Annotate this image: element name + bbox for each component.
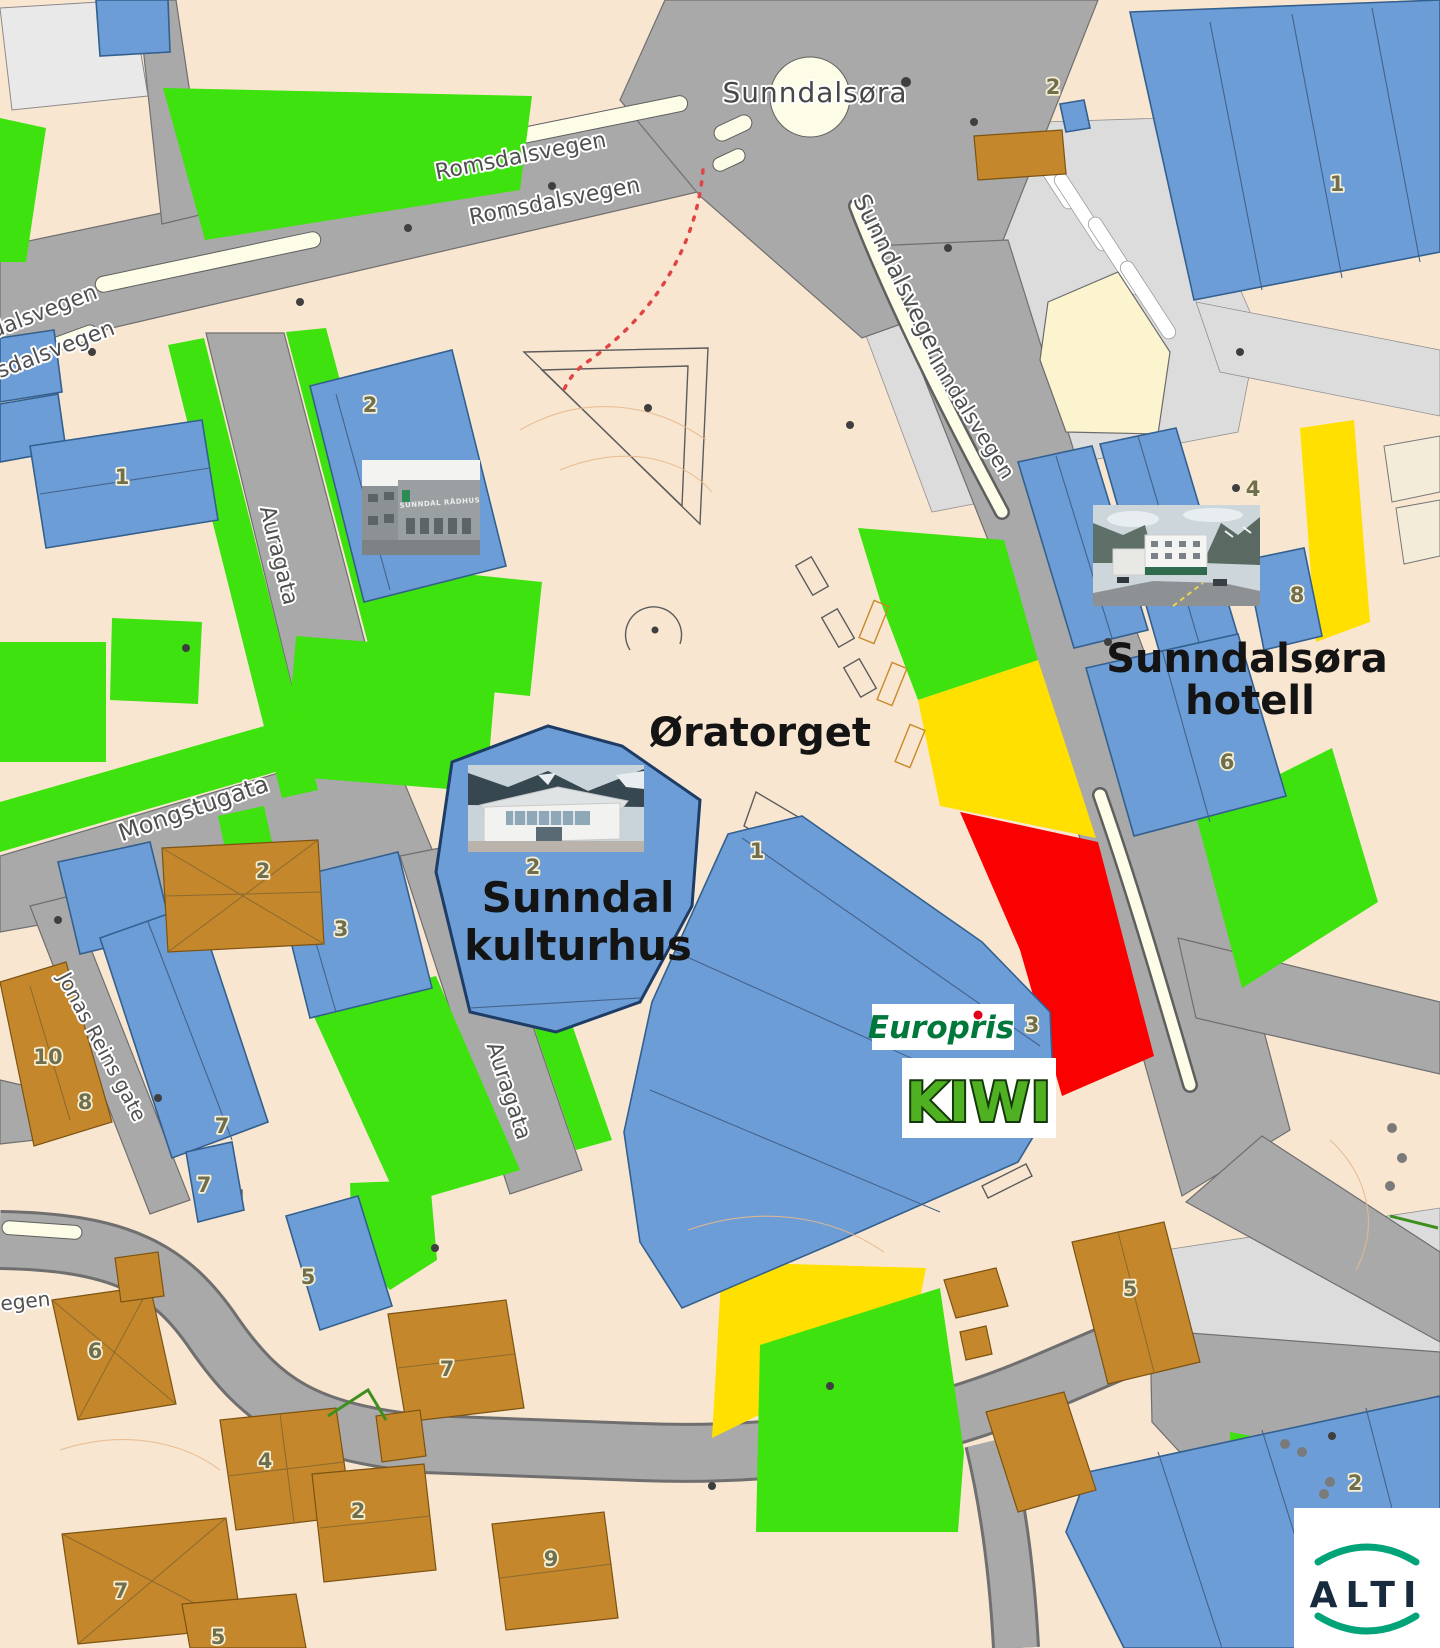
building-number: 5 — [301, 1265, 316, 1289]
building-number: 1 — [1330, 172, 1345, 196]
building-blue — [96, 0, 170, 56]
label-hotell-line1: Sunndalsøra — [1106, 636, 1388, 682]
building-number: 2 — [363, 393, 378, 417]
building-number: 7 — [215, 1114, 230, 1138]
building-tan-2 — [162, 840, 324, 952]
building-number: 6 — [88, 1339, 103, 1363]
europris-logo: Europris — [868, 1004, 1014, 1050]
building-number: 3 — [334, 917, 349, 941]
building-number: 2 — [351, 1499, 366, 1523]
photo-sunndal-kulturhus — [468, 765, 644, 852]
building-number: 2 — [1046, 75, 1061, 99]
sunndalsora-map: Sunndal Rådhus — [0, 0, 1440, 1648]
europris-logo-dot — [974, 1011, 983, 1020]
label-hotell-line2: hotell — [1185, 678, 1315, 724]
label-oratorget: Øratorget — [649, 710, 871, 756]
photo-sunndal-radhus: SUNNDAL RÅDHUS — [362, 460, 480, 555]
building-number: 2 — [1348, 1471, 1363, 1495]
building-number: 7 — [197, 1173, 212, 1197]
label-kulturhus-line1: Sunndal — [482, 873, 675, 922]
building-blue — [1060, 100, 1090, 132]
label-kulturhus-line2: kulturhus — [464, 921, 692, 970]
place-label-sunndalsora: Sunndalsøra — [722, 76, 907, 109]
kiwi-logo: KIWI — [902, 1058, 1056, 1138]
house-7a — [388, 1300, 524, 1422]
building-number: 4 — [258, 1449, 273, 1473]
building-number: 1 — [750, 839, 765, 863]
alti-logo-text: ALTI — [1310, 1575, 1425, 1616]
building-number: 5 — [1123, 1277, 1138, 1301]
building-number: 3 — [1025, 1013, 1040, 1037]
kiwi-logo-text: KIWI — [906, 1071, 1052, 1134]
building-number: 7 — [440, 1357, 455, 1381]
building-number: 7 — [114, 1579, 129, 1603]
building-number: 6 — [1220, 750, 1235, 774]
building-number: 1 — [115, 465, 130, 489]
building-number: 8 — [1290, 583, 1305, 607]
building-number: 8 — [78, 1090, 93, 1114]
photo-sunndalsora-hotell — [1093, 505, 1260, 606]
green-zone — [110, 618, 202, 704]
map-canvas: Sunndal Rådhus — [0, 0, 1440, 1648]
house-9 — [492, 1512, 618, 1630]
house — [960, 1326, 992, 1360]
house-2 — [312, 1464, 436, 1582]
building-tan — [974, 130, 1066, 180]
europris-logo-text: Europris — [868, 1010, 1014, 1046]
house — [115, 1252, 164, 1302]
building-cream — [1384, 436, 1440, 502]
building-number: 2 — [526, 855, 541, 879]
building-cream — [1396, 500, 1440, 564]
building-number: 2 — [256, 859, 271, 883]
building-number: 4 — [1246, 477, 1261, 501]
green-zone — [0, 642, 106, 762]
house-5 — [182, 1594, 306, 1648]
building-number: 10 — [33, 1045, 62, 1069]
building-number: 9 — [544, 1547, 559, 1571]
building-number: 5 — [211, 1625, 226, 1648]
alti-logo: ALTI — [1294, 1508, 1440, 1648]
